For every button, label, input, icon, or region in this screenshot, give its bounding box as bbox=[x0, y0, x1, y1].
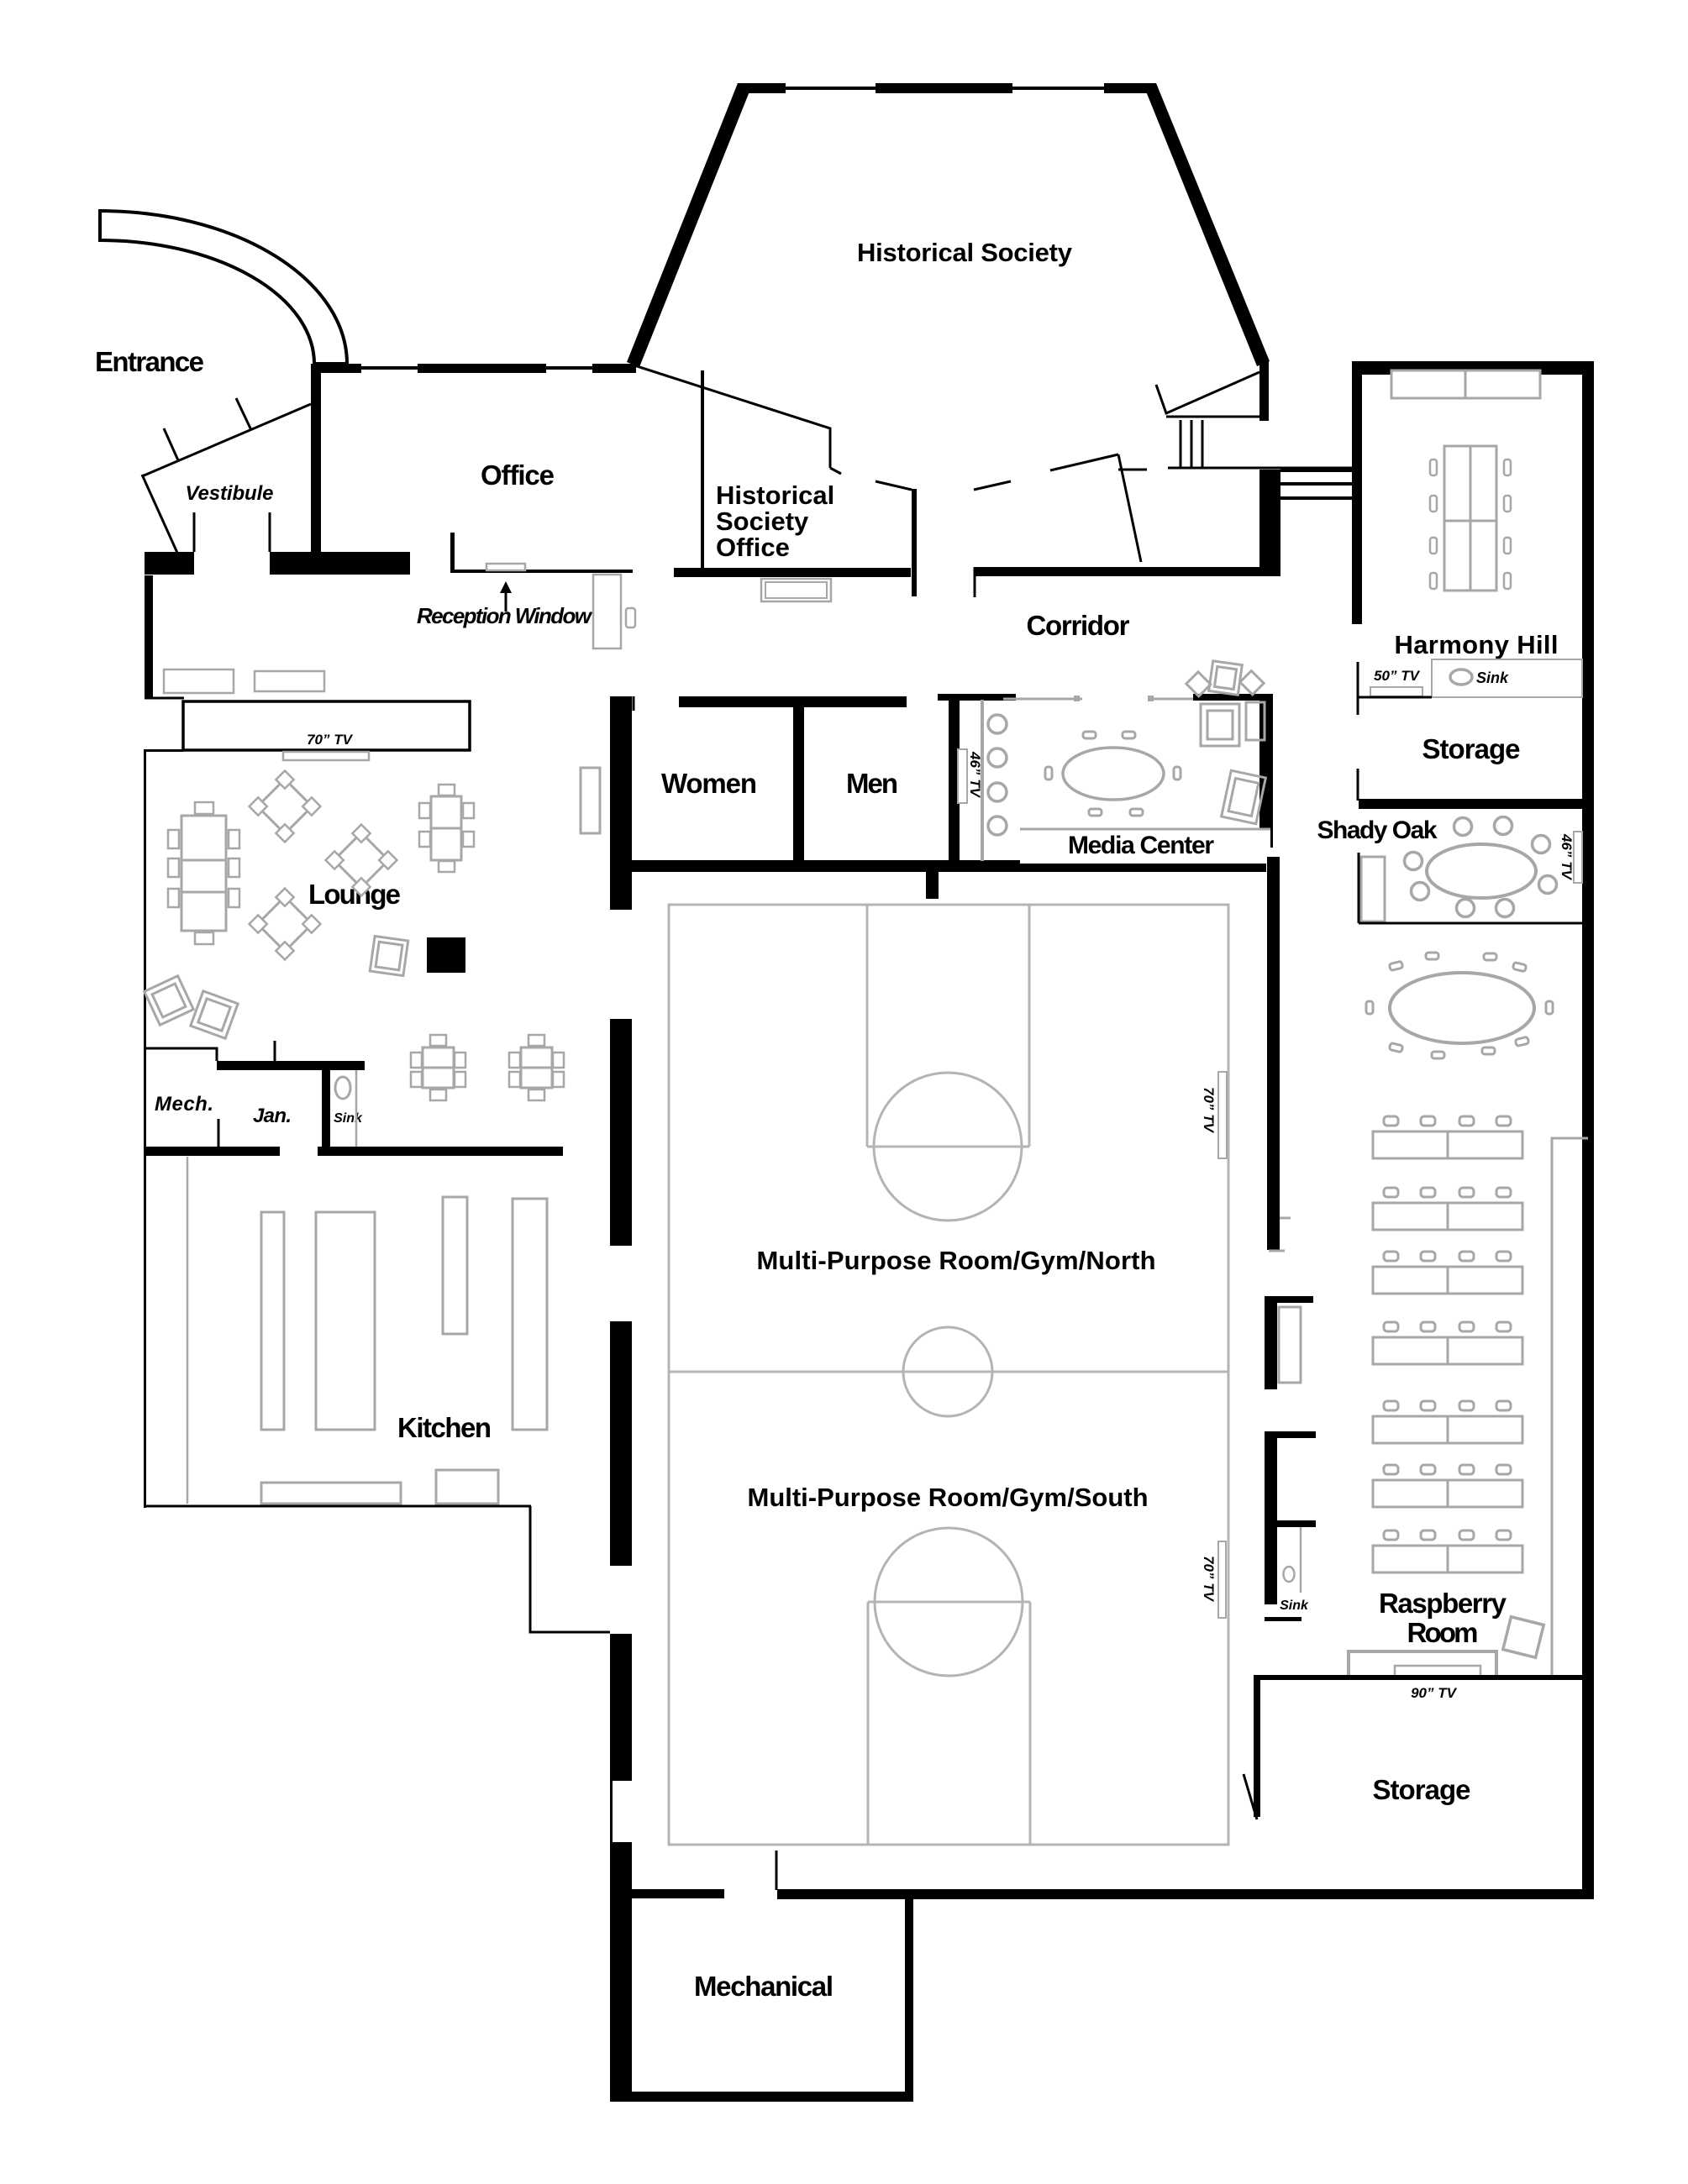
svg-text:Room: Room bbox=[1407, 1617, 1479, 1648]
svg-text:Shady Oak: Shady Oak bbox=[1317, 816, 1438, 844]
svg-text:Society: Society bbox=[716, 507, 809, 536]
svg-text:Sink: Sink bbox=[1280, 1599, 1309, 1613]
svg-text:Storage: Storage bbox=[1422, 733, 1521, 764]
svg-text:Mechanical: Mechanical bbox=[694, 1971, 833, 2002]
svg-text:Jan.: Jan. bbox=[253, 1105, 292, 1127]
svg-text:70” TV: 70” TV bbox=[1201, 1087, 1217, 1134]
svg-text:90” TV: 90” TV bbox=[1411, 1685, 1458, 1701]
svg-text:Women: Women bbox=[661, 768, 757, 799]
svg-text:Reception Window: Reception Window bbox=[417, 603, 593, 628]
svg-text:Media Center: Media Center bbox=[1068, 832, 1214, 859]
svg-text:70” TV: 70” TV bbox=[307, 732, 354, 748]
svg-text:Kitchen: Kitchen bbox=[397, 1412, 492, 1443]
svg-text:Sink: Sink bbox=[334, 1111, 363, 1126]
svg-text:46” TV: 46” TV bbox=[1559, 833, 1575, 881]
svg-text:Historical Society: Historical Society bbox=[857, 238, 1073, 267]
svg-text:70” TV: 70” TV bbox=[1201, 1556, 1217, 1603]
svg-text:Corridor: Corridor bbox=[1027, 610, 1130, 641]
svg-text:Historical: Historical bbox=[716, 480, 834, 510]
svg-text:Multi-Purpose Room/Gym/South: Multi-Purpose Room/Gym/South bbox=[748, 1483, 1149, 1512]
svg-text:Vestibule: Vestibule bbox=[186, 482, 274, 505]
svg-text:Mech.: Mech. bbox=[155, 1093, 213, 1116]
svg-text:Multi-Purpose Room/Gym/North: Multi-Purpose Room/Gym/North bbox=[757, 1246, 1156, 1275]
svg-text:Harmony Hill: Harmony Hill bbox=[1395, 630, 1559, 659]
svg-text:Entrance: Entrance bbox=[95, 346, 204, 377]
svg-text:Storage: Storage bbox=[1373, 1774, 1471, 1805]
svg-text:Raspberry: Raspberry bbox=[1379, 1588, 1507, 1619]
svg-text:46” TV: 46” TV bbox=[967, 751, 983, 799]
svg-text:50” TV: 50” TV bbox=[1374, 668, 1421, 684]
svg-text:Sink: Sink bbox=[1476, 669, 1509, 686]
svg-text:Men: Men bbox=[846, 768, 898, 799]
svg-text:Office: Office bbox=[716, 533, 790, 562]
svg-text:Office: Office bbox=[481, 459, 555, 491]
